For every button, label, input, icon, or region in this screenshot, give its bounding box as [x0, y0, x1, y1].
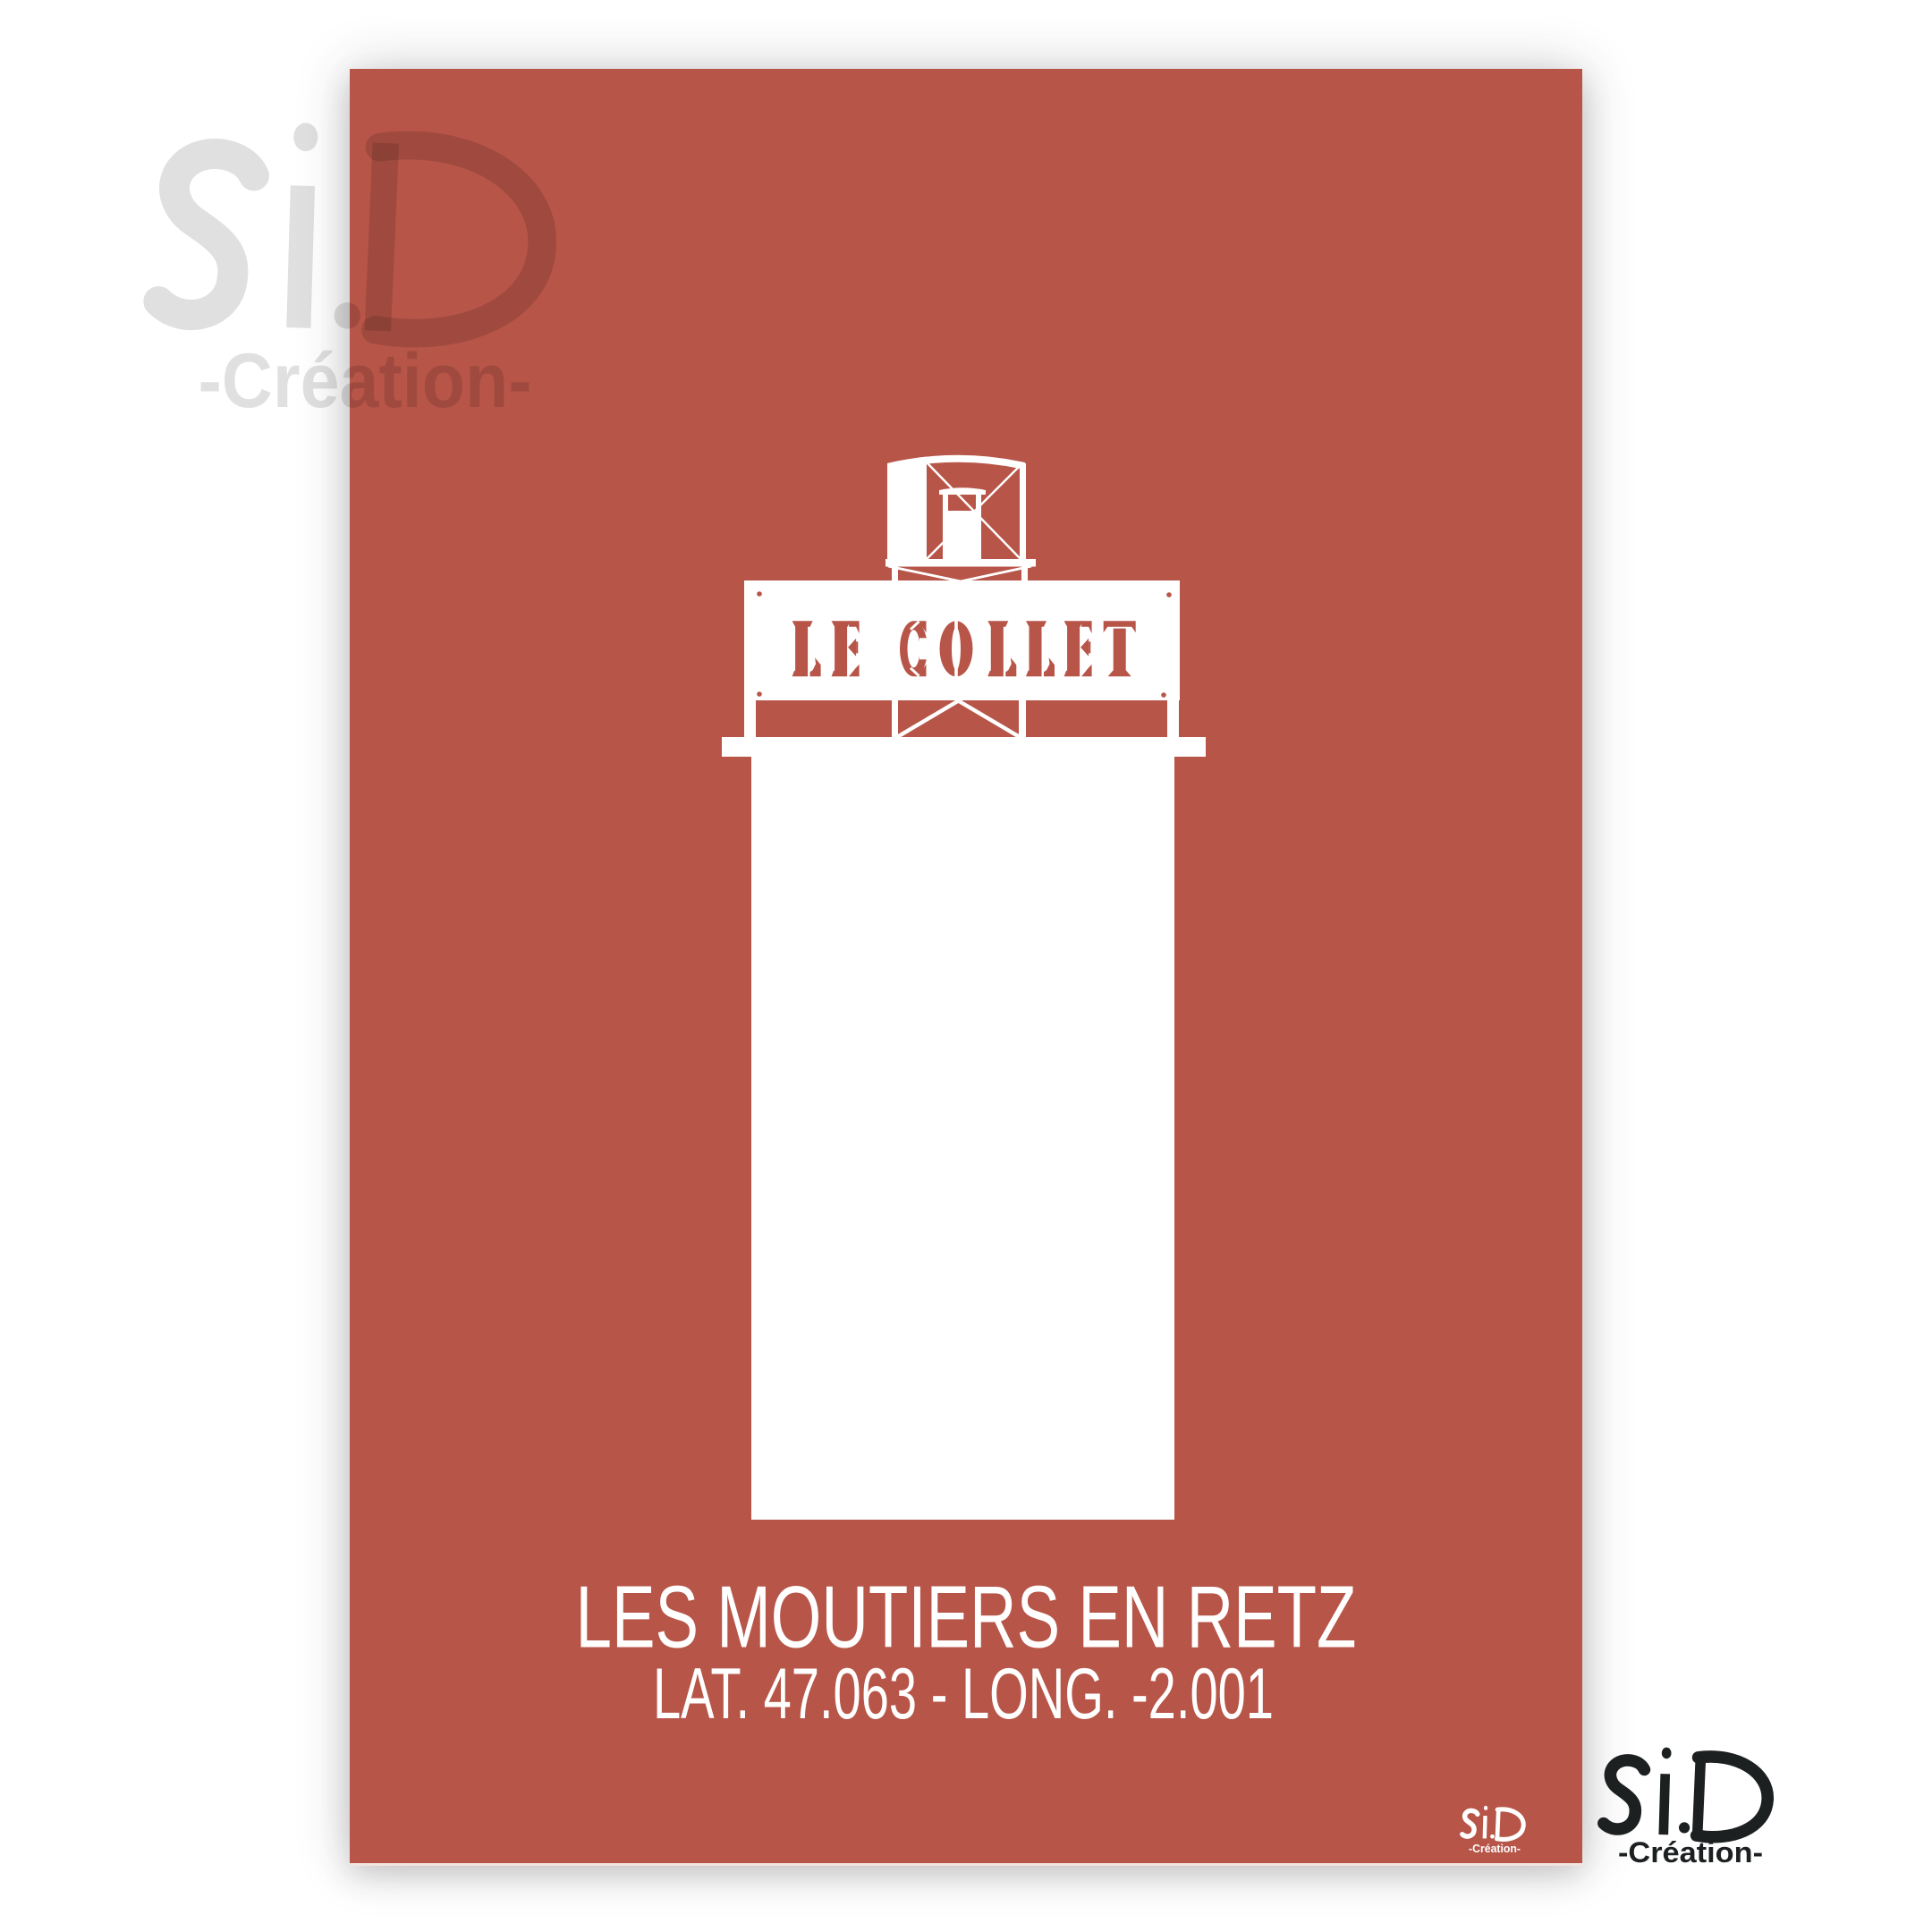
- svg-text:LES MOUTIERS EN RETZ: LES MOUTIERS EN RETZ: [576, 1568, 1357, 1666]
- svg-text:-Création-: -Création-: [1618, 1836, 1763, 1868]
- svg-text:-Création-: -Création-: [1469, 1842, 1521, 1855]
- svg-text:LAT. 47.063 - LONG. -2.001: LAT. 47.063 - LONG. -2.001: [653, 1654, 1274, 1734]
